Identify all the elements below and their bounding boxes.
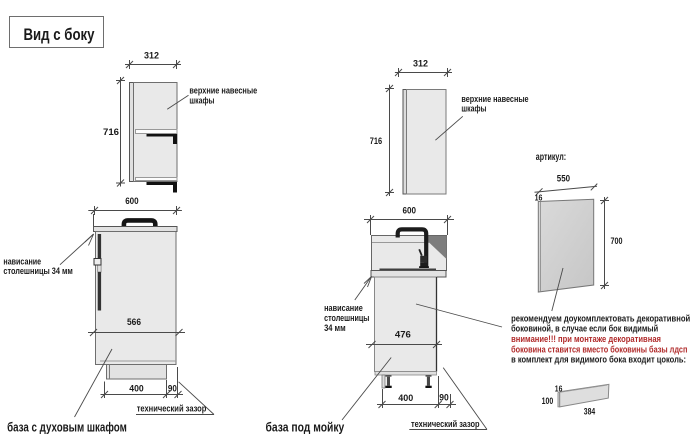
svg-text:16: 16 bbox=[555, 383, 563, 393]
svg-text:34 мм: 34 мм bbox=[324, 323, 346, 334]
svg-text:384: 384 bbox=[584, 407, 596, 418]
svg-text:90: 90 bbox=[439, 393, 449, 404]
svg-text:внимание!!! при монтаже декора: внимание!!! при монтаже декоративная bbox=[511, 334, 661, 344]
svg-text:шкафы: шкафы bbox=[189, 96, 214, 107]
svg-text:технический зазор: технический зазор bbox=[137, 404, 207, 415]
svg-text:100: 100 bbox=[542, 396, 554, 407]
svg-text:рекомендуем доукомплектовать д: рекомендуем доукомплектовать декоративно… bbox=[511, 314, 690, 324]
svg-text:боковиной, в случае если бок в: боковиной, в случае если бок видимый bbox=[511, 324, 658, 334]
svg-text:600: 600 bbox=[403, 206, 417, 217]
svg-text:600: 600 bbox=[125, 196, 139, 207]
svg-text:566: 566 bbox=[127, 317, 141, 328]
svg-text:столешницы 34 мм: столешницы 34 мм bbox=[3, 266, 72, 277]
svg-text:550: 550 bbox=[557, 174, 570, 185]
svg-text:700: 700 bbox=[611, 236, 623, 247]
svg-text:312: 312 bbox=[413, 58, 428, 69]
svg-text:716: 716 bbox=[103, 127, 119, 138]
svg-text:476: 476 bbox=[395, 330, 411, 341]
svg-text:в комплект для видимого бока в: в комплект для видимого бока входит цоко… bbox=[511, 354, 686, 364]
svg-text:артикул:: артикул: bbox=[536, 152, 566, 163]
svg-text:база с духовым шкафом: база с духовым шкафом bbox=[7, 419, 127, 434]
svg-text:технический зазор: технический зазор bbox=[411, 419, 480, 430]
svg-text:шкафы: шкафы bbox=[461, 103, 486, 114]
svg-text:400: 400 bbox=[398, 393, 413, 404]
svg-text:716: 716 bbox=[370, 136, 382, 147]
svg-text:90: 90 bbox=[168, 384, 177, 395]
svg-text:400: 400 bbox=[129, 384, 143, 395]
svg-text:боковина ставится вместо боков: боковина ставится вместо боковины базы л… bbox=[511, 344, 687, 354]
svg-text:база под мойку: база под мойку bbox=[266, 419, 345, 434]
svg-text:Вид с боку: Вид с боку bbox=[24, 25, 95, 44]
svg-text:312: 312 bbox=[144, 51, 159, 62]
